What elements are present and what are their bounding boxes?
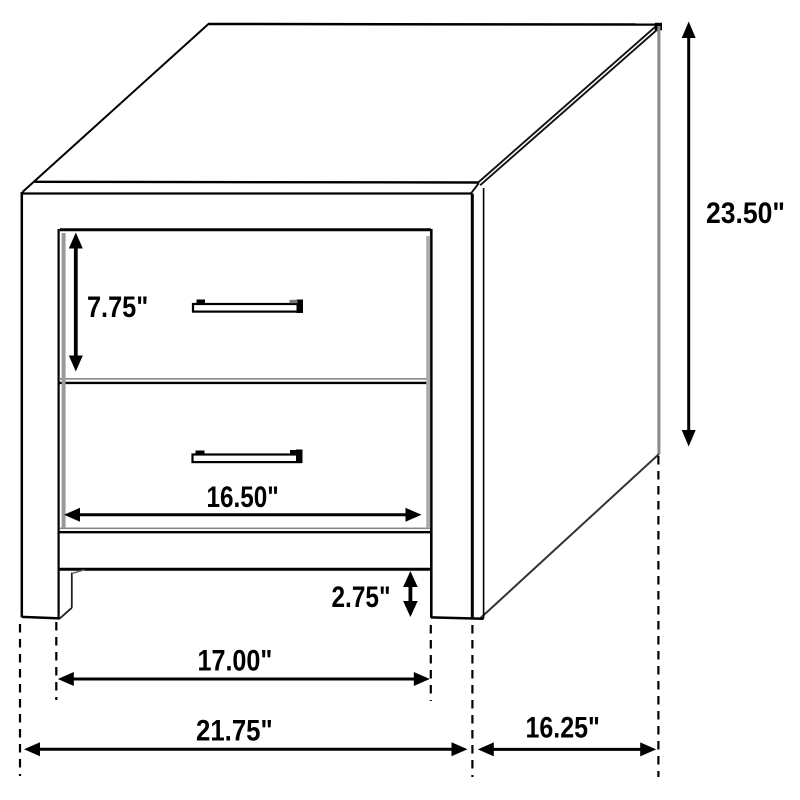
svg-text:17.00": 17.00" <box>198 644 273 677</box>
svg-text:21.75": 21.75" <box>196 714 273 747</box>
svg-text:2.75": 2.75" <box>332 581 391 614</box>
svg-text:16.25": 16.25" <box>526 712 600 745</box>
svg-text:16.50": 16.50" <box>207 481 279 514</box>
svg-text:7.75": 7.75" <box>87 291 148 324</box>
svg-text:23.50": 23.50" <box>706 197 785 230</box>
